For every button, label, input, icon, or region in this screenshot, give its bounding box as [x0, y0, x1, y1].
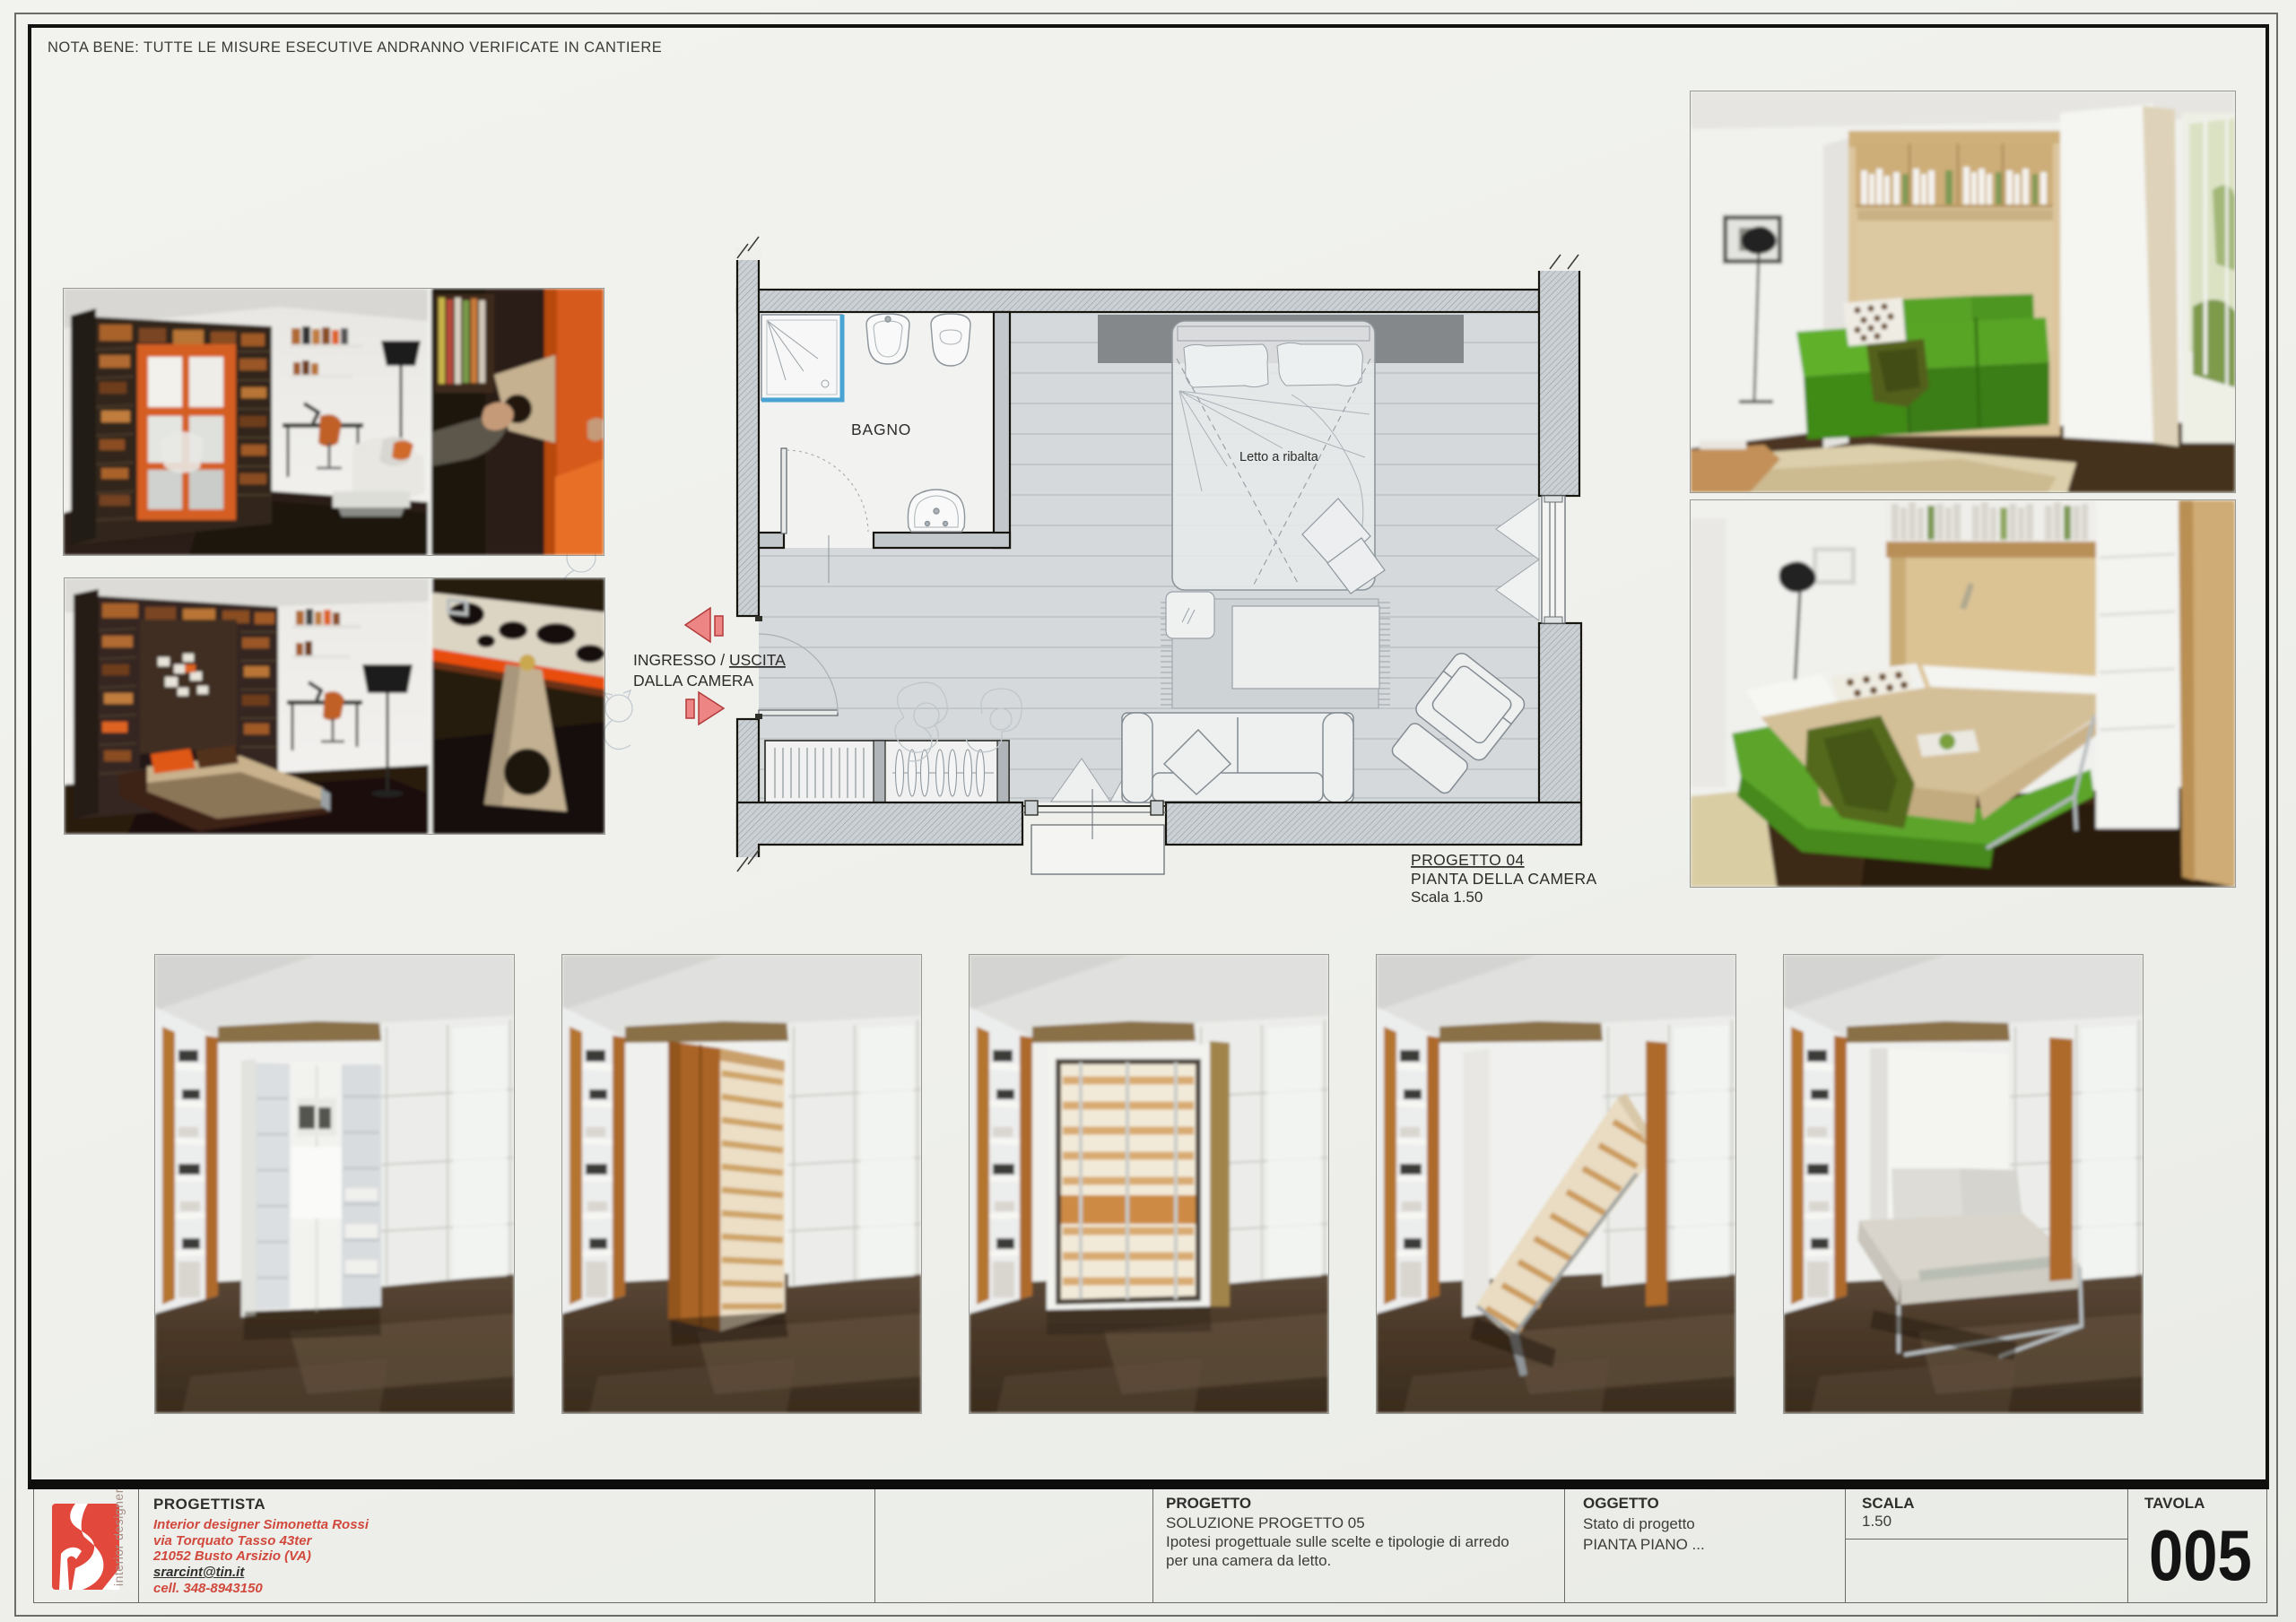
- svg-text:PIANTA DELLA CAMERA: PIANTA DELLA CAMERA: [1411, 870, 1597, 888]
- svg-text:DALLA CAMERA: DALLA CAMERA: [633, 672, 754, 690]
- svg-text:PROGETTO 04: PROGETTO 04: [1411, 851, 1525, 869]
- svg-text:INGRESSO / USCITA: INGRESSO / USCITA: [633, 651, 786, 669]
- svg-text:BAGNO: BAGNO: [851, 421, 911, 438]
- svg-text:Scala 1.50: Scala 1.50: [1411, 889, 1483, 906]
- svg-text:Letto a ribalta: Letto a ribalta: [1239, 450, 1319, 464]
